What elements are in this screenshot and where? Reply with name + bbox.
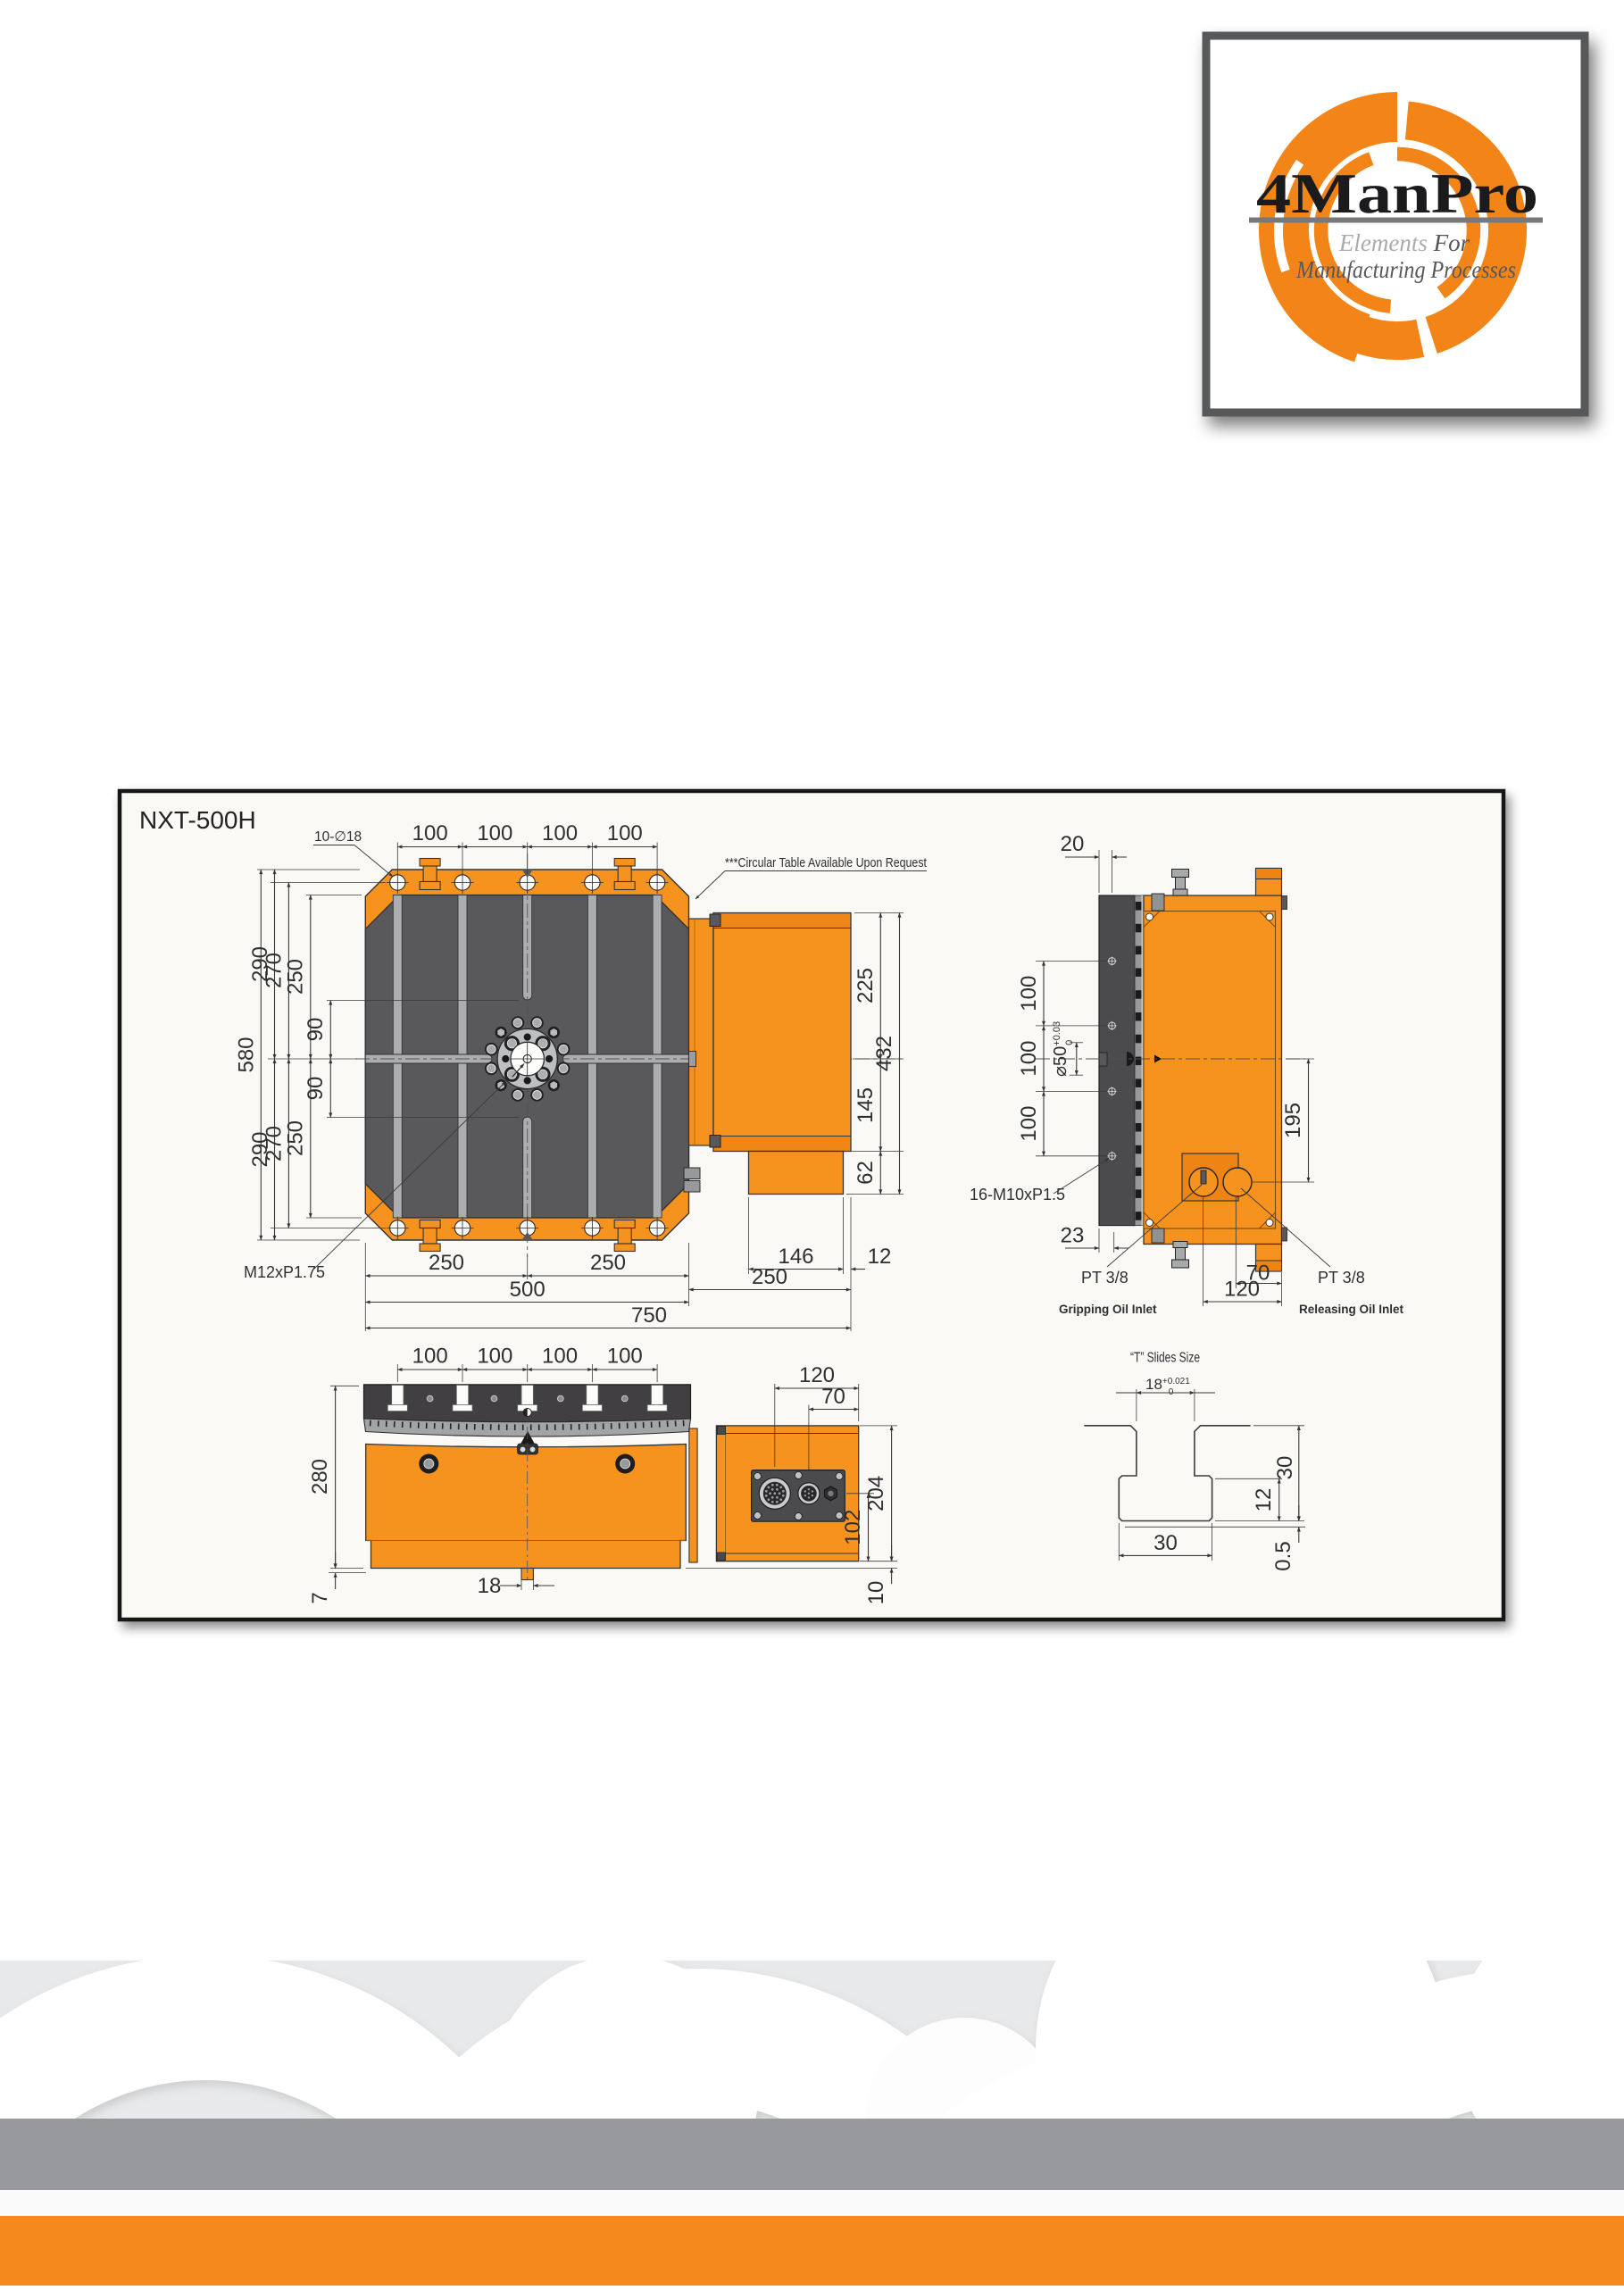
svg-text:100: 100: [477, 821, 512, 845]
svg-text:120: 120: [799, 1363, 835, 1387]
svg-text:20: 20: [1061, 832, 1085, 856]
svg-text:23: 23: [1061, 1224, 1085, 1248]
svg-text:90: 90: [304, 1077, 328, 1101]
svg-text:***Circular Table Available Up: ***Circular Table Available Upon Request: [725, 855, 928, 870]
svg-text:100: 100: [542, 1345, 578, 1369]
svg-text:100: 100: [1017, 1041, 1041, 1077]
svg-text:250: 250: [429, 1251, 464, 1275]
svg-text:PT 3/8: PT 3/8: [1318, 1269, 1365, 1287]
svg-text:100: 100: [542, 821, 578, 845]
svg-text:195: 195: [1281, 1103, 1305, 1138]
svg-text:100: 100: [607, 1345, 643, 1369]
svg-text:250: 250: [752, 1265, 787, 1289]
svg-text:100: 100: [412, 821, 448, 845]
svg-text:270: 270: [262, 953, 287, 988]
svg-text:145: 145: [854, 1087, 878, 1123]
svg-text:250: 250: [590, 1251, 626, 1275]
svg-text:“T” Slides Size: “T” Slides Size: [1130, 1351, 1200, 1366]
svg-text:120: 120: [1224, 1278, 1260, 1302]
svg-text:0.5: 0.5: [1271, 1541, 1295, 1570]
svg-text:270: 270: [262, 1126, 287, 1162]
svg-text:Gripping Oil Inlet: Gripping Oil Inlet: [1059, 1303, 1157, 1316]
svg-text:500: 500: [510, 1278, 545, 1302]
svg-text:10: 10: [864, 1581, 888, 1605]
svg-text:12: 12: [1252, 1488, 1276, 1512]
svg-text:Elements For: Elements For: [1338, 229, 1470, 256]
svg-text:Releasing Oil Inlet: Releasing Oil Inlet: [1299, 1303, 1404, 1316]
svg-text:100: 100: [607, 821, 643, 845]
svg-text:18: 18: [478, 1574, 502, 1598]
svg-text:Manufacturing Processes: Manufacturing Processes: [1295, 256, 1516, 283]
svg-text:250: 250: [284, 959, 308, 995]
svg-text:100: 100: [477, 1345, 512, 1369]
svg-text:30: 30: [1153, 1531, 1178, 1555]
svg-text:PT 3/8: PT 3/8: [1081, 1269, 1128, 1287]
svg-text:100: 100: [412, 1345, 448, 1369]
svg-text:100: 100: [1017, 976, 1041, 1012]
svg-text:250: 250: [284, 1120, 308, 1156]
svg-text:16-M10xP1.5: 16-M10xP1.5: [970, 1186, 1065, 1203]
svg-text:62: 62: [854, 1161, 878, 1185]
svg-text:90: 90: [304, 1018, 328, 1042]
svg-text:30: 30: [1273, 1456, 1297, 1480]
svg-text:102: 102: [841, 1510, 865, 1545]
svg-text:100: 100: [1017, 1106, 1041, 1142]
svg-text:NXT-500H: NXT-500H: [139, 806, 256, 834]
svg-text:580: 580: [235, 1037, 259, 1072]
svg-text:225: 225: [854, 968, 878, 1003]
svg-text:10-∅18: 10-∅18: [314, 829, 362, 845]
svg-text:750: 750: [631, 1303, 667, 1328]
svg-text:70: 70: [821, 1385, 845, 1409]
svg-text:432: 432: [872, 1036, 896, 1071]
svg-text:280: 280: [308, 1459, 332, 1495]
svg-text:7: 7: [308, 1592, 332, 1603]
svg-text:12: 12: [868, 1245, 892, 1269]
svg-text:4ManPro: 4ManPro: [1256, 162, 1538, 225]
svg-text:M12xP1.75: M12xP1.75: [244, 1263, 325, 1281]
